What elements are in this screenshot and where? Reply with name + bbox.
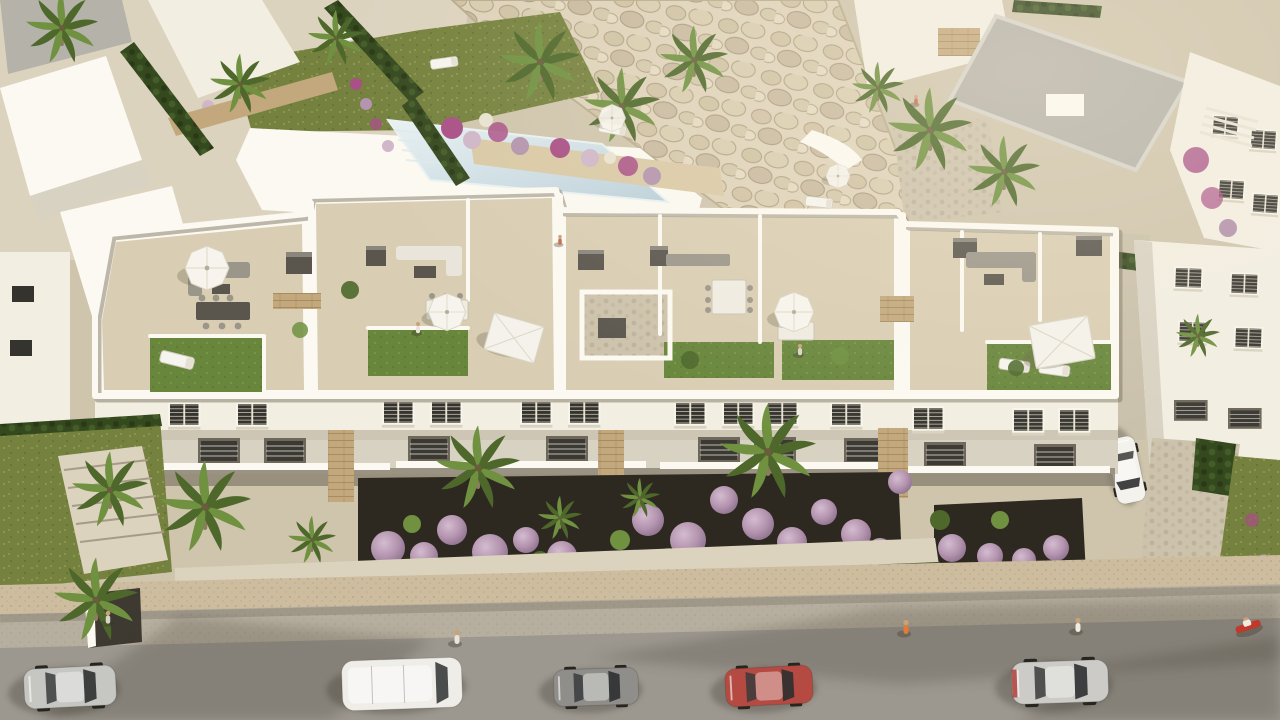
sunlight-overlay <box>0 0 1280 720</box>
aerial-render <box>0 0 1280 720</box>
